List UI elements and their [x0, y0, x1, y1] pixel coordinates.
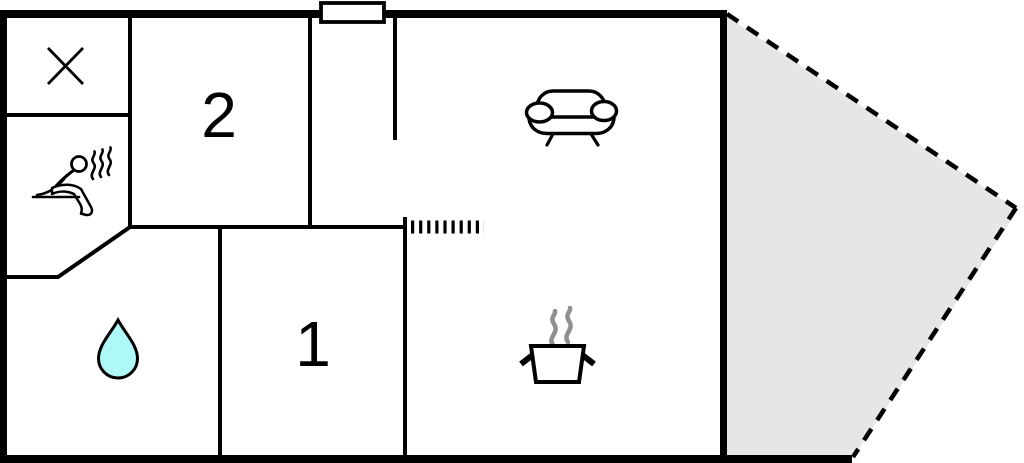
outer-walls — [0, 10, 852, 463]
floor-plan: 2 1 — [0, 0, 1024, 463]
wall-vertical-a — [128, 16, 132, 229]
wall-room1-right — [403, 217, 407, 455]
cooking-pot-icon — [521, 308, 594, 382]
room-1-label: 1 — [295, 308, 331, 380]
wall-vertical-partial — [393, 16, 397, 140]
wall-vertical-b — [308, 16, 312, 227]
pot-steam-icon — [551, 308, 570, 345]
wall-room1-left — [218, 225, 222, 455]
sofa-armrest-right — [592, 102, 617, 121]
sauna-person-leg — [52, 185, 92, 215]
sofa-icon — [527, 91, 617, 145]
wall-left — [0, 10, 7, 463]
sofa-leg-left — [547, 134, 553, 145]
sauna-steam-icon — [92, 148, 111, 180]
sofa-armrest-left — [527, 103, 553, 122]
water-drop-icon — [99, 320, 138, 378]
pot-body — [531, 346, 584, 382]
sofa-leg-right — [591, 134, 598, 145]
sauna-person-icon — [33, 148, 111, 216]
chimney — [321, 3, 384, 22]
floor-plan-drawing: 2 1 — [0, 0, 1024, 463]
x-icon — [48, 48, 83, 84]
terrace-fill — [723, 14, 1018, 459]
wall-sauna-bottom — [0, 275, 59, 279]
wall-right — [720, 10, 727, 463]
wall-diagonal — [58, 227, 130, 277]
terrace-area — [723, 14, 1018, 459]
wall-storage-bottom — [0, 113, 131, 117]
room-2-label: 2 — [201, 79, 237, 151]
wall-horizontal-middle — [128, 225, 407, 229]
